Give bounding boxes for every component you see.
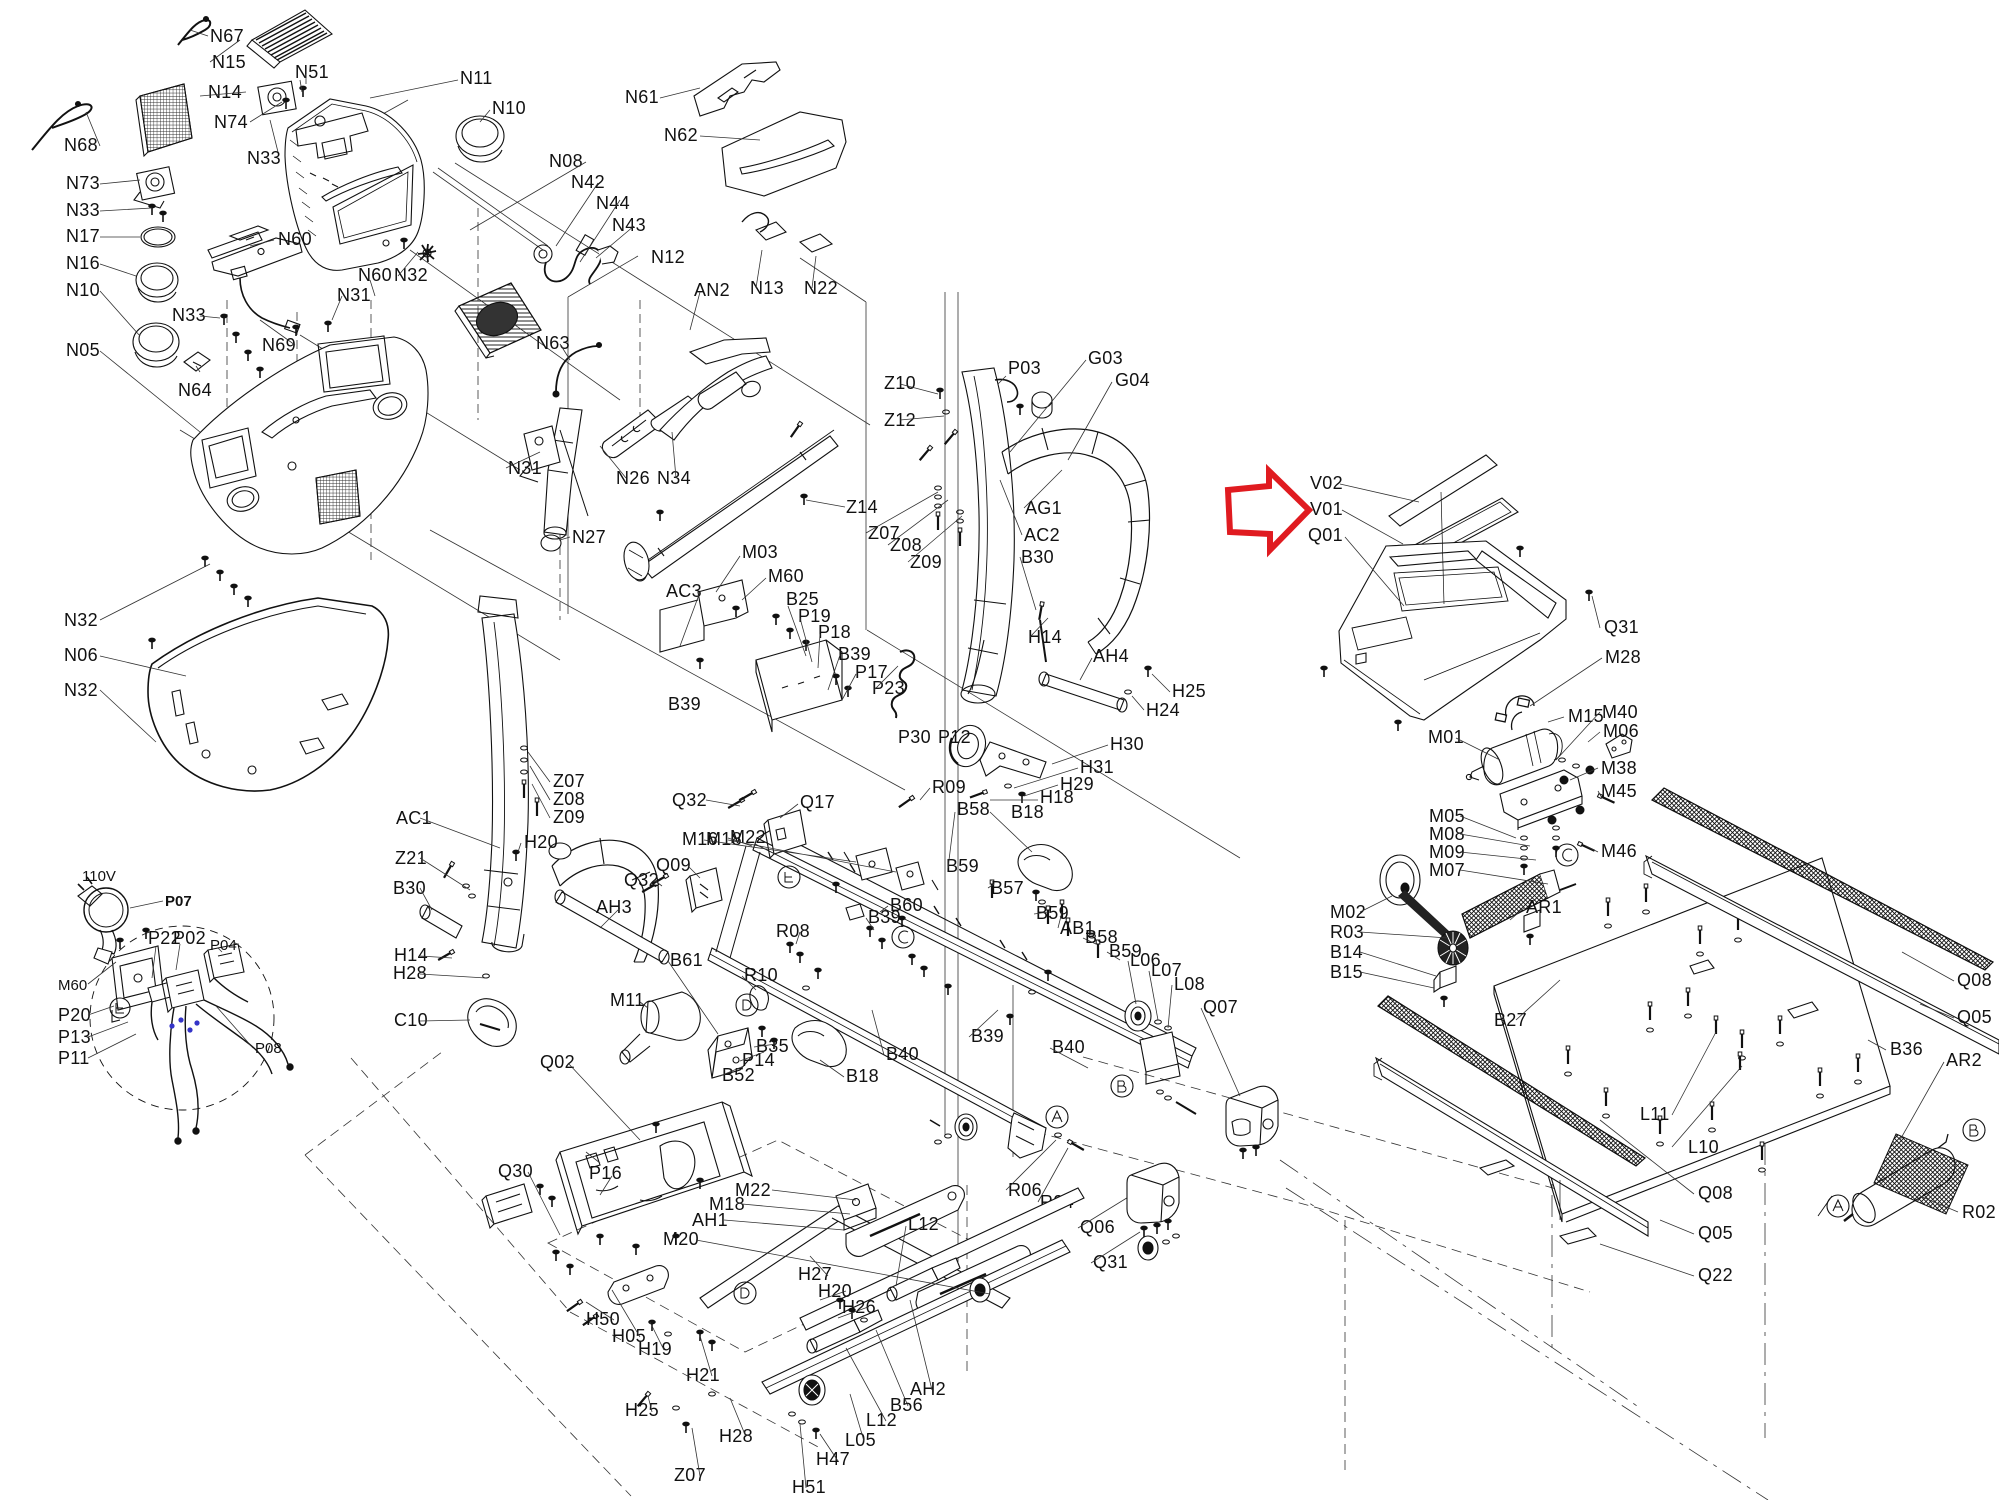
svg-text:M60: M60	[58, 977, 87, 994]
svg-text:B18: B18	[1011, 802, 1044, 822]
svg-text:Z09: Z09	[910, 552, 942, 572]
svg-text:N27: N27	[572, 527, 606, 547]
svg-text:N10: N10	[492, 98, 526, 118]
svg-text:N69: N69	[262, 335, 296, 355]
svg-text:Q05: Q05	[1698, 1223, 1733, 1243]
svg-text:N11: N11	[460, 68, 493, 88]
svg-text:N22: N22	[804, 278, 838, 298]
svg-text:M09: M09	[1429, 842, 1465, 862]
svg-text:Q09: Q09	[656, 855, 691, 875]
svg-text:L11: L11	[1640, 1104, 1670, 1124]
svg-text:P11: P11	[58, 1048, 90, 1068]
svg-text:C10: C10	[394, 1010, 428, 1030]
svg-text:B61: B61	[670, 950, 703, 970]
svg-text:H21: H21	[686, 1365, 720, 1385]
svg-text:B60: B60	[890, 895, 923, 915]
svg-text:AH1: AH1	[692, 1210, 728, 1230]
svg-text:Q06: Q06	[1080, 1217, 1115, 1237]
svg-text:B36: B36	[1890, 1039, 1923, 1059]
svg-text:AN2: AN2	[694, 280, 730, 300]
svg-text:N13: N13	[750, 278, 784, 298]
svg-text:AC2: AC2	[1024, 525, 1060, 545]
svg-text:B40: B40	[886, 1044, 919, 1064]
svg-text:P02: P02	[173, 928, 206, 948]
svg-text:H24: H24	[1146, 700, 1180, 720]
svg-text:Q02: Q02	[540, 1052, 575, 1072]
svg-text:R03: R03	[1330, 922, 1364, 942]
svg-text:Q32: Q32	[672, 790, 707, 810]
svg-text:P08: P08	[255, 1040, 282, 1057]
svg-text:N33: N33	[247, 148, 281, 168]
svg-text:H28: H28	[719, 1426, 753, 1446]
svg-text:Q31: Q31	[1604, 617, 1639, 637]
svg-text:B58: B58	[957, 799, 990, 819]
svg-text:B15: B15	[1330, 962, 1363, 982]
svg-text:N43: N43	[612, 215, 646, 235]
svg-text:N14: N14	[208, 82, 242, 102]
svg-text:B39: B39	[838, 644, 871, 664]
svg-text:Z12: Z12	[884, 410, 916, 430]
svg-text:M20: M20	[663, 1229, 699, 1249]
svg-text:N63: N63	[536, 333, 570, 353]
svg-text:N73: N73	[66, 173, 100, 193]
svg-text:H47: H47	[816, 1449, 850, 1469]
svg-text:N10: N10	[66, 280, 100, 300]
svg-text:AC1: AC1	[396, 808, 432, 828]
svg-text:Q30: Q30	[498, 1161, 533, 1181]
svg-text:H30: H30	[1110, 734, 1144, 754]
svg-text:N16: N16	[66, 253, 100, 273]
svg-text:L10: L10	[1688, 1137, 1719, 1157]
svg-text:B59: B59	[946, 856, 979, 876]
svg-text:B30: B30	[393, 878, 426, 898]
svg-text:P23: P23	[872, 678, 905, 698]
svg-text:P20: P20	[58, 1005, 91, 1025]
svg-text:H28: H28	[393, 963, 427, 983]
svg-text:N44: N44	[596, 193, 630, 213]
svg-text:AR1: AR1	[1526, 897, 1562, 917]
svg-text:G03: G03	[1088, 348, 1123, 368]
svg-text:H25: H25	[625, 1400, 659, 1420]
svg-text:M08: M08	[1429, 824, 1465, 844]
svg-text:M07: M07	[1429, 860, 1465, 880]
svg-text:N62: N62	[664, 125, 698, 145]
svg-text:M18: M18	[706, 829, 742, 849]
svg-text:Q07: Q07	[1203, 997, 1238, 1017]
svg-text:H20: H20	[524, 832, 558, 852]
svg-text:P03: P03	[1008, 358, 1041, 378]
svg-text:Q08: Q08	[1698, 1183, 1733, 1203]
svg-text:N05: N05	[66, 340, 100, 360]
svg-text:N68: N68	[64, 135, 98, 155]
svg-text:P04: P04	[210, 937, 237, 954]
svg-text:N74: N74	[214, 112, 248, 132]
svg-text:B27: B27	[1494, 1010, 1527, 1030]
svg-text:P30: P30	[898, 727, 931, 747]
svg-text:H19: H19	[638, 1339, 672, 1359]
svg-text:M60: M60	[768, 566, 804, 586]
svg-text:N33: N33	[66, 200, 100, 220]
svg-text:M06: M06	[1603, 721, 1639, 741]
svg-text:AR2: AR2	[1946, 1050, 1982, 1070]
svg-text:AC3: AC3	[666, 581, 702, 601]
svg-text:Q17: Q17	[800, 792, 835, 812]
svg-text:V02: V02	[1310, 473, 1343, 493]
svg-text:M11: M11	[610, 990, 645, 1010]
svg-text:N17: N17	[66, 226, 100, 246]
svg-text:N06: N06	[64, 645, 98, 665]
svg-text:AH4: AH4	[1093, 646, 1129, 666]
svg-text:N32: N32	[64, 610, 98, 630]
svg-text:N51: N51	[295, 62, 329, 82]
svg-text:B18: B18	[846, 1066, 879, 1086]
svg-text:N33: N33	[172, 305, 206, 325]
svg-text:R02: R02	[1962, 1202, 1996, 1222]
svg-text:M03: M03	[742, 542, 778, 562]
svg-text:L08: L08	[1174, 974, 1205, 994]
svg-text:B39: B39	[971, 1026, 1004, 1046]
svg-text:H14: H14	[1028, 627, 1062, 647]
svg-text:N26: N26	[616, 468, 650, 488]
svg-text:M40: M40	[1602, 702, 1638, 722]
svg-text:P12: P12	[938, 727, 971, 747]
svg-text:N32: N32	[64, 680, 98, 700]
svg-text:Z21: Z21	[395, 848, 427, 868]
svg-text:Q08: Q08	[1957, 970, 1992, 990]
svg-text:N15: N15	[212, 52, 246, 72]
svg-text:H26: H26	[842, 1297, 876, 1317]
svg-text:L05: L05	[845, 1430, 876, 1450]
svg-text:AH2: AH2	[910, 1379, 946, 1399]
svg-text:N34: N34	[657, 468, 691, 488]
svg-text:M28: M28	[1605, 647, 1641, 667]
svg-text:Z08: Z08	[553, 789, 585, 809]
svg-text:Q32: Q32	[624, 870, 659, 890]
svg-text:N64: N64	[178, 380, 212, 400]
svg-text:Z14: Z14	[846, 497, 878, 517]
svg-text:R08: R08	[776, 921, 810, 941]
svg-text:R10: R10	[744, 965, 778, 985]
svg-text:P13: P13	[58, 1027, 91, 1047]
svg-text:H18: H18	[1040, 787, 1074, 807]
svg-text:N42: N42	[571, 172, 605, 192]
svg-text:M15: M15	[1568, 706, 1604, 726]
svg-text:N12: N12	[651, 247, 685, 267]
svg-text:Z09: Z09	[553, 807, 585, 827]
svg-text:Z10: Z10	[884, 373, 916, 393]
svg-text:M46: M46	[1601, 841, 1637, 861]
svg-text:M45: M45	[1601, 781, 1637, 801]
svg-text:B14: B14	[1330, 942, 1363, 962]
svg-text:N60: N60	[358, 265, 392, 285]
svg-text:P16: P16	[589, 1163, 622, 1183]
svg-text:N31: N31	[337, 285, 371, 305]
svg-text:R09: R09	[932, 777, 966, 797]
svg-text:B39: B39	[668, 694, 701, 714]
svg-text:N67: N67	[210, 26, 244, 46]
svg-text:N61: N61	[625, 87, 659, 107]
svg-text:L12: L12	[908, 1214, 939, 1234]
svg-text:P07: P07	[165, 893, 192, 910]
svg-text:N31: N31	[508, 458, 542, 478]
svg-text:B30: B30	[1021, 547, 1054, 567]
svg-text:V01: V01	[1310, 499, 1343, 519]
svg-text:110V: 110V	[82, 868, 116, 885]
svg-text:P18: P18	[818, 622, 851, 642]
svg-text:Q22: Q22	[1698, 1265, 1733, 1285]
svg-text:G04: G04	[1115, 370, 1150, 390]
svg-text:Z07: Z07	[674, 1465, 706, 1485]
svg-text:N60: N60	[278, 229, 312, 249]
svg-text:Q05: Q05	[1957, 1007, 1992, 1027]
svg-text:M05: M05	[1429, 806, 1465, 826]
svg-text:Q01: Q01	[1308, 525, 1343, 545]
svg-text:H25: H25	[1172, 681, 1206, 701]
svg-text:N08: N08	[549, 151, 583, 171]
svg-text:H51: H51	[792, 1477, 826, 1497]
svg-text:M38: M38	[1601, 758, 1637, 778]
svg-text:B57: B57	[991, 878, 1024, 898]
svg-text:Q31: Q31	[1093, 1252, 1128, 1272]
svg-text:Z07: Z07	[553, 771, 585, 791]
svg-text:B40: B40	[1052, 1037, 1085, 1057]
svg-text:H14: H14	[394, 945, 428, 965]
svg-text:M01: M01	[1428, 727, 1464, 747]
